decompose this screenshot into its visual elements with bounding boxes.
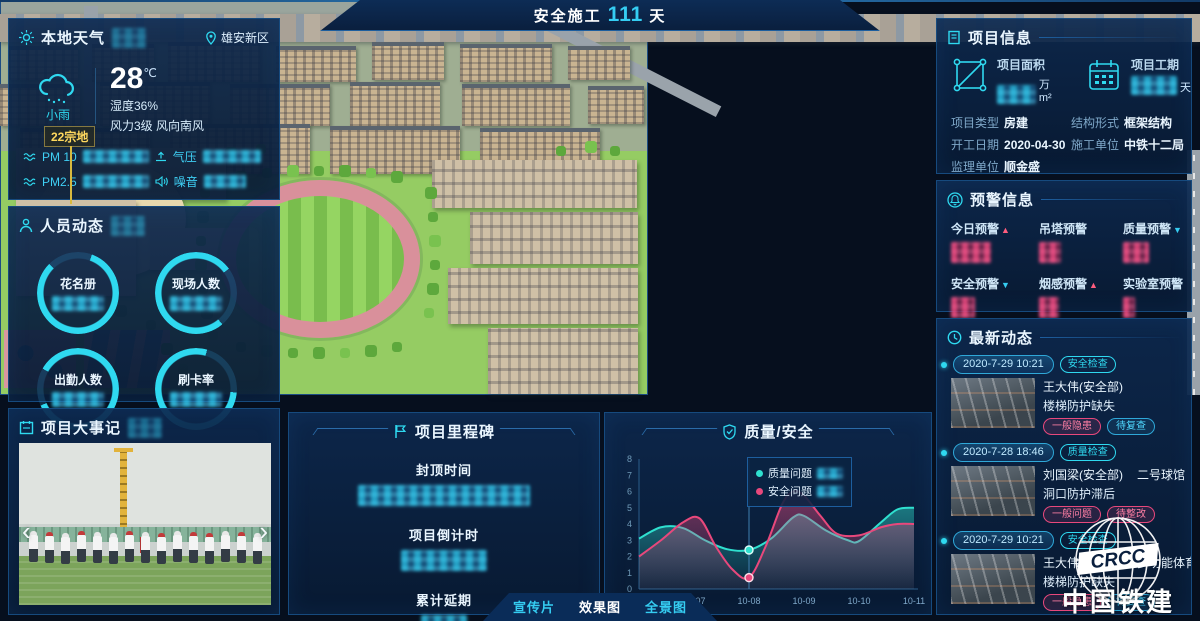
decor-line [1040, 337, 1181, 338]
svg-text:4: 4 [627, 519, 632, 529]
panel-quality-safety: 质量/安全 01234567810-0610-0710-0810-0910-10… [604, 412, 932, 615]
pressure-icon [155, 151, 167, 162]
update-entry[interactable]: 2020-7-29 10:21安全检查王大伟(安全部)多功能体育馆楼梯防护缺失一… [937, 528, 1191, 615]
masked-value [951, 242, 991, 263]
milestone-label: 项目倒计时 [289, 525, 599, 544]
masked-value [170, 392, 222, 407]
entry-header: 2020-7-29 10:21安全检查 [951, 355, 1185, 374]
calendar-icon [1085, 56, 1123, 94]
project-field: 施工单位中铁十二局 [1071, 136, 1184, 153]
warning-label: 实验室预警 [1123, 277, 1183, 291]
masked-caption [112, 28, 146, 48]
svg-text:10-10: 10-10 [847, 596, 870, 606]
crane-in-photo [120, 448, 127, 539]
entry-issue: 楼梯防护缺失 [1043, 573, 1192, 590]
decor-line [1039, 37, 1181, 38]
rain-cloud-icon [35, 70, 81, 106]
metric-label: 噪音 [174, 173, 198, 190]
person-figure [221, 535, 230, 562]
status-badge: 一般问题 [1043, 506, 1101, 523]
ring-label: 花名册 [60, 275, 96, 292]
project-field: 开工日期2020-04-30 [951, 136, 1069, 153]
header-unit: 天 [649, 5, 666, 26]
person-figure [109, 537, 118, 564]
dashboard-root: 22宗地 宣传片效果图全景图 安全施工 111 天 本地天气 雄安新区 小雨 2… [0, 0, 1200, 621]
person-figure [157, 537, 166, 564]
field-value: 顺金盛 [1004, 160, 1040, 174]
decor-wing [642, 428, 718, 435]
wave-icon [23, 152, 36, 162]
carousel-next-button[interactable]: › [259, 518, 268, 544]
residential-building [350, 82, 440, 126]
metric-label: 气压 [173, 148, 197, 165]
svg-text:10-09: 10-09 [792, 596, 815, 606]
decor-wing [818, 428, 894, 435]
entry-issue: 楼梯防护缺失 [1043, 397, 1155, 414]
masked-value [204, 175, 246, 188]
entry-person: 王大伟(安全部)多功能体育馆 [1043, 554, 1192, 571]
person-figure [173, 535, 182, 562]
weather-metric: PM 10 [23, 148, 149, 165]
entry-photo [951, 466, 1035, 516]
person-figure [77, 535, 86, 562]
entry-body: 王大伟(安全部)多功能体育馆楼梯防护缺失一般隐患待复查 [951, 554, 1185, 611]
project-field: 监理单位顺金盛 [951, 158, 1069, 175]
masked-value [170, 296, 222, 311]
legend-dot-quality [756, 470, 763, 477]
field-label: 监理单位 [951, 160, 999, 174]
area-label: 项目面积 [997, 56, 1059, 73]
entry-photo [951, 554, 1035, 604]
school-building [488, 328, 638, 394]
person-figure [189, 536, 198, 563]
grass-in-photo [19, 556, 271, 605]
timeline-dot-icon [941, 450, 947, 456]
update-entry[interactable]: 2020-7-29 10:21安全检查王大伟(安全部)楼梯防护缺失一般隐患待复查 [937, 352, 1191, 440]
field-value: 房建 [1004, 116, 1028, 130]
masked-value [401, 550, 487, 571]
weather-condition: 小雨 [35, 70, 81, 123]
entry-type-badge: 质量检查 [1060, 444, 1116, 461]
update-entry[interactable]: 2020-7-28 18:46质量检查刘国梁(安全部)二号球馆洞口防护滞后一般问… [937, 440, 1191, 528]
update-entries: 2020-7-29 10:21安全检查王大伟(安全部)楼梯防护缺失一般隐患待复查… [937, 352, 1191, 615]
warning-stat: 今日预警▲ [951, 220, 1037, 263]
panel-title: 预警信息 [970, 189, 1034, 210]
entry-header: 2020-7-29 10:21安全检查 [951, 531, 1185, 550]
panel-milestone: 项目里程碑 封顶时间项目倒计时累计延期 [288, 412, 600, 615]
ring-label: 出勤人数 [54, 371, 102, 388]
region-badge: 雄安新区 [205, 29, 269, 46]
svg-text:2: 2 [627, 552, 632, 562]
masked-value [997, 85, 1036, 104]
person-figure [205, 537, 214, 564]
legend-label-quality: 质量问题 [768, 465, 812, 481]
project-field: 结构形式框架结构 [1071, 114, 1184, 131]
person-figure [125, 535, 134, 562]
project-field: 项目类型房建 [951, 114, 1069, 131]
masked-value [83, 175, 149, 188]
entry-body: 刘国梁(安全部)二号球馆洞口防护滞后一般问题待整改 [951, 466, 1185, 523]
trend-up-icon: ▲ [1001, 225, 1010, 235]
person-figure [93, 536, 102, 563]
warning-stat: 安全预警▼ [951, 275, 1037, 318]
duration-label: 项目工期 [1131, 56, 1191, 73]
masked-value [817, 468, 843, 479]
noise-icon [155, 176, 168, 187]
residential-building [462, 84, 570, 126]
svg-text:0: 0 [627, 584, 632, 594]
entry-badges: 一般隐患待复查 [1043, 594, 1192, 611]
person-figure [61, 537, 70, 564]
panel-warnings: 预警信息 今日预警▲吊塔预警质量预警▼安全预警▼烟感预警▲实验室预警 [936, 180, 1192, 312]
svg-text:8: 8 [627, 454, 632, 464]
entry-date: 2020-7-28 18:46 [953, 443, 1054, 462]
weather-metric: PM2.5 [23, 173, 149, 190]
person-figure [141, 536, 150, 563]
shield-check-icon [722, 424, 737, 440]
duration-unit: 天 [1180, 79, 1191, 95]
trend-down-icon: ▼ [1001, 280, 1010, 290]
residential-building [568, 46, 630, 80]
entry-header: 2020-7-28 18:46质量检查 [951, 443, 1185, 462]
document-icon [947, 30, 961, 45]
field-value: 框架结构 [1124, 116, 1172, 130]
panel-weather: 本地天气 雄安新区 小雨 28℃ 湿度36% 风力3级 风向南风 PM 10气压… [8, 18, 280, 200]
carousel-prev-button[interactable]: ‹ [22, 518, 31, 544]
field-value: 中铁十二局 [1124, 138, 1184, 152]
residential-building [460, 44, 552, 82]
status-badge: 一般隐患 [1043, 594, 1101, 611]
wave-icon [23, 177, 36, 187]
field-label: 项目类型 [951, 116, 999, 130]
person-figure [45, 536, 54, 563]
masked-value [203, 150, 261, 163]
masked-value [951, 297, 975, 318]
person-figure [237, 536, 246, 563]
field-label: 开工日期 [951, 138, 999, 152]
panel-title: 本地天气 [41, 27, 105, 48]
svg-text:10-08: 10-08 [737, 596, 760, 606]
land-plot-label: 22宗地 [44, 126, 95, 147]
panel-title: 项目里程碑 [415, 421, 495, 442]
masked-value [1123, 242, 1149, 263]
school-building [432, 160, 637, 208]
entry-type-badge: 安全检查 [1060, 532, 1116, 549]
masked-value [817, 486, 843, 497]
project-fields: 项目类型房建结构形式框架结构开工日期2020-04-30施工单位中铁十二局监理单… [937, 106, 1191, 175]
wind: 风力3级 风向南风 [110, 117, 204, 134]
school-building [470, 212, 638, 264]
entry-issue: 洞口防护滞后 [1043, 485, 1185, 502]
milestone-photo: ‹ › [19, 443, 271, 605]
ring-label: 刷卡率 [178, 371, 214, 388]
warning-label: 安全预警 [951, 277, 999, 291]
person-name: 刘国梁(安全部) [1043, 468, 1123, 482]
clock-icon [947, 330, 962, 345]
trend-down-icon: ▼ [1173, 225, 1182, 235]
condition-label: 小雨 [35, 106, 81, 123]
personnel-rings: 花名册现场人数出勤人数刷卡率 [9, 240, 279, 400]
entry-person: 刘国梁(安全部)二号球馆 [1043, 466, 1185, 483]
person-name: 王大伟(安全部) [1043, 556, 1123, 570]
entry-text: 王大伟(安全部)多功能体育馆楼梯防护缺失一般隐患待复查 [1043, 554, 1192, 611]
status-badge: 待复查 [1107, 418, 1155, 435]
panel-title: 人员动态 [40, 215, 104, 236]
panel-personnel: 人员动态 花名册现场人数出勤人数刷卡率 [8, 206, 280, 402]
masked-value [1039, 297, 1059, 318]
project-duration-card: 项目工期 天 [1085, 56, 1191, 104]
decor-wing [500, 428, 576, 435]
entry-text: 王大伟(安全部)楼梯防护缺失一般隐患待复查 [1043, 378, 1155, 435]
warning-label: 烟感预警 [1039, 277, 1087, 291]
chart-tooltip: 质量问题 安全问题 [747, 457, 852, 507]
masked-value [358, 485, 530, 506]
masked-value [52, 296, 104, 311]
decor-wing [313, 428, 389, 435]
entry-photo [951, 378, 1035, 428]
residential-building [276, 46, 356, 82]
svg-text:1: 1 [627, 568, 632, 578]
panel-project-info: 项目信息 项目面积 万m² 项目工期 天 项目类型房建结构形式框架结构开工日期2… [936, 18, 1192, 174]
divider [95, 68, 96, 124]
svg-text:7: 7 [627, 470, 632, 480]
masked-value [1123, 297, 1135, 318]
warning-stat: 吊塔预警 [1039, 220, 1121, 263]
warning-label: 今日预警 [951, 222, 999, 236]
header-prefix: 安全施工 [534, 5, 602, 26]
entry-type-badge: 安全检查 [1060, 356, 1116, 373]
milestone-item: 项目倒计时 [289, 525, 599, 576]
entry-person: 王大伟(安全部) [1043, 378, 1155, 395]
alarm-bell-icon [947, 192, 963, 208]
location-pin-icon [205, 31, 217, 45]
status-badge: 待复查 [1107, 594, 1155, 611]
warning-stat: 烟感预警▲ [1039, 275, 1121, 318]
warning-label: 质量预警 [1123, 222, 1171, 236]
milestone-label: 封顶时间 [289, 460, 599, 479]
ring-content: 花名册 [37, 252, 119, 334]
masked-value [52, 392, 104, 407]
panel-events: 项目大事记 ‹ › [8, 408, 280, 615]
flag-icon [393, 424, 408, 439]
field-label: 施工单位 [1071, 138, 1119, 152]
warning-label: 吊塔预警 [1039, 222, 1087, 236]
person-icon [19, 218, 33, 233]
masked-value [1039, 242, 1061, 263]
entry-badges: 一般隐患待复查 [1043, 418, 1155, 435]
timeline-dot-icon [941, 362, 947, 368]
legend-dot-safety [756, 488, 763, 495]
panel-title: 质量/安全 [744, 421, 813, 442]
trend-up-icon: ▲ [1089, 280, 1098, 290]
weather-metric: 噪音 [155, 173, 267, 190]
masked-caption [128, 418, 162, 438]
entry-location: 多功能体育馆 [1137, 556, 1192, 570]
residential-building [588, 86, 644, 124]
page-header: 安全施工 111 天 [534, 3, 667, 27]
ring-content: 现场人数 [155, 252, 237, 334]
status-badge: 待整改 [1107, 506, 1155, 523]
residential-building [372, 42, 444, 80]
field-value: 2020-04-30 [1004, 138, 1065, 152]
entry-location: 二号球馆 [1137, 468, 1185, 482]
weather-metric: 气压 [155, 148, 267, 165]
status-badge: 一般隐患 [1043, 418, 1101, 435]
entry-badges: 一般问题待整改 [1043, 506, 1185, 523]
masked-value [83, 150, 149, 163]
warning-stat: 质量预警▼ [1123, 220, 1185, 263]
field-label: 结构形式 [1071, 116, 1119, 130]
warning-stat: 实验室预警 [1123, 275, 1185, 318]
safe-days-count: 111 [608, 3, 644, 27]
person-name: 王大伟(安全部) [1043, 380, 1123, 394]
panel-title: 项目大事记 [41, 417, 121, 438]
ring-label: 现场人数 [172, 275, 220, 292]
svg-text:6: 6 [627, 487, 632, 497]
masked-value [1131, 76, 1177, 95]
temperature: 28℃ [110, 58, 204, 94]
school-building [448, 268, 638, 324]
project-area-card: 项目面积 万m² [951, 56, 1059, 104]
milestone-item: 封顶时间 [289, 460, 599, 511]
decor-line [1041, 199, 1181, 200]
svg-text:10-11: 10-11 [903, 596, 925, 606]
panel-title: 项目信息 [968, 27, 1032, 48]
svg-text:3: 3 [627, 535, 632, 545]
warning-stats: 今日预警▲吊塔预警质量预警▼安全预警▼烟感预警▲实验室预警 [937, 214, 1191, 318]
region-label: 雄安新区 [221, 29, 269, 46]
entry-date: 2020-7-29 10:21 [953, 355, 1054, 374]
timeline-dot-icon [941, 538, 947, 544]
legend-label-safety: 安全问题 [768, 483, 812, 499]
svg-text:5: 5 [627, 503, 632, 513]
entry-text: 刘国梁(安全部)二号球馆洞口防护滞后一般问题待整改 [1043, 466, 1185, 523]
panel-updates: 最新动态 2020-7-29 10:21安全检查王大伟(安全部)楼梯防护缺失一般… [936, 318, 1192, 615]
calendar-note-icon [19, 420, 34, 435]
masked-value [421, 615, 467, 621]
sun-icon [19, 30, 34, 45]
panel-title: 最新动态 [969, 327, 1033, 348]
area-unit: 万m² [1039, 76, 1059, 104]
trees-layer [0, 0, 2, 2]
area-measure-icon [951, 56, 989, 94]
masked-caption [111, 216, 145, 236]
entry-body: 王大伟(安全部)楼梯防护缺失一般隐患待复查 [951, 378, 1185, 435]
humidity: 湿度36% [110, 97, 204, 114]
entry-date: 2020-7-29 10:21 [953, 531, 1054, 550]
